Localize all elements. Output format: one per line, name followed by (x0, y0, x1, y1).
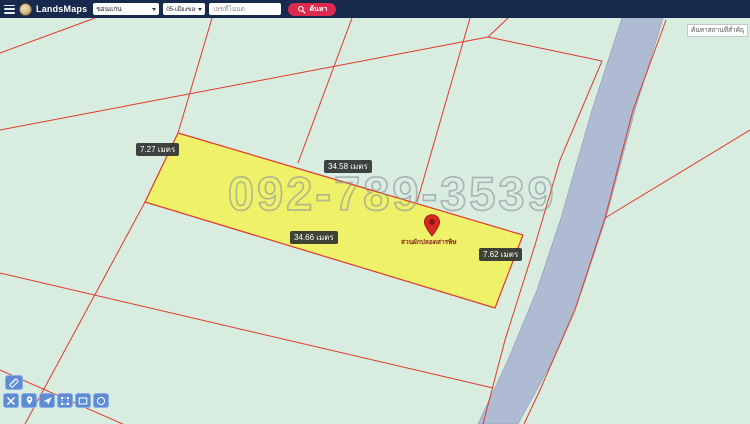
hamburger-menu-icon[interactable] (4, 5, 15, 14)
deed-number-input[interactable] (209, 3, 281, 15)
drawing-toolbar (3, 393, 109, 408)
measurement-badge-east: 7.62 เมตร (479, 248, 522, 261)
landsmaps-app: 092-789-3539 7.27 เมตร 34.58 เมตร 34.66 … (0, 0, 750, 424)
measurement-badge-west: 7.27 เมตร (136, 143, 179, 156)
search-icon (297, 5, 306, 14)
district-select-value: 05-เมืองขอนแก่น (166, 4, 196, 14)
drop-marker-tool-button[interactable] (21, 393, 37, 408)
map-canvas[interactable]: 092-789-3539 7.27 เมตร 34.58 เมตร 34.66 … (0, 0, 750, 424)
chevron-down-icon (152, 8, 156, 11)
search-button[interactable]: ค้นหา (288, 3, 336, 16)
measurement-badge-north: 34.58 เมตร (324, 160, 372, 173)
draw-polygon-tool-button[interactable] (57, 393, 73, 408)
draw-rectangle-tool-button[interactable] (75, 393, 91, 408)
river-band (478, 18, 663, 424)
draw-circle-tool-button[interactable] (93, 393, 109, 408)
poi-marker-label: สวนผักปลอดสารพิษ (401, 237, 471, 247)
lands-department-logo-icon (19, 3, 32, 16)
navigate-tool-button[interactable] (39, 393, 55, 408)
cross-tools-icon (6, 396, 16, 406)
province-select-value: ขอนแก่น (96, 4, 150, 14)
chevron-down-icon (198, 8, 202, 11)
district-select[interactable]: 05-เมืองขอนแก่น (163, 3, 205, 15)
province-select[interactable]: ขอนแก่น (93, 3, 159, 15)
measurement-badge-south: 34.66 เมตร (290, 231, 338, 244)
ruler-icon (8, 377, 20, 389)
rectangle-icon (77, 395, 89, 407)
search-button-label: ค้นหา (309, 4, 327, 15)
poi-search-input[interactable] (687, 24, 748, 37)
circle-icon (95, 395, 107, 407)
app-title: LandsMaps (36, 4, 87, 14)
map-pin-icon (24, 395, 35, 406)
topbar: LandsMaps ขอนแก่น 05-เมืองขอนแก่น ค้นหา (0, 0, 750, 18)
cadastral-overlay (0, 0, 750, 424)
measure-tool-button[interactable] (5, 375, 23, 390)
paper-plane-icon (42, 395, 53, 406)
polygon-icon (59, 395, 71, 407)
clear-tool-button[interactable] (3, 393, 19, 408)
